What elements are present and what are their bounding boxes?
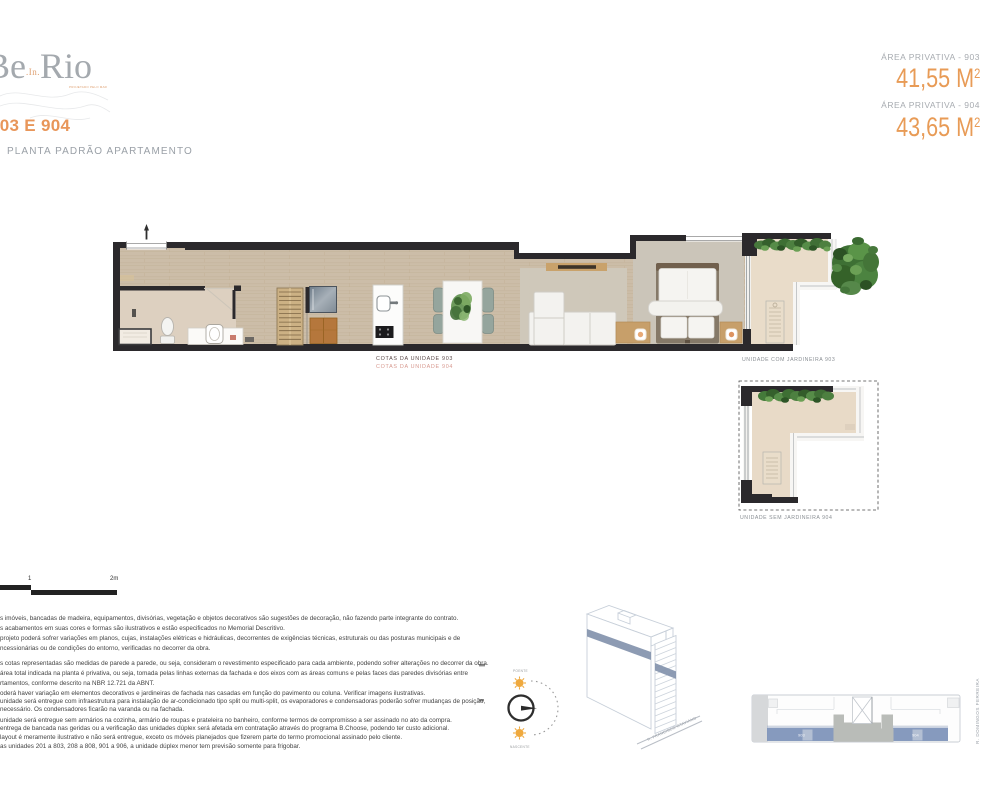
svg-text:904: 904 — [912, 733, 919, 738]
svg-text:R. DOMINGOS FERREIRA: R. DOMINGOS FERREIRA — [975, 678, 980, 744]
svg-text:903: 903 — [798, 733, 805, 738]
